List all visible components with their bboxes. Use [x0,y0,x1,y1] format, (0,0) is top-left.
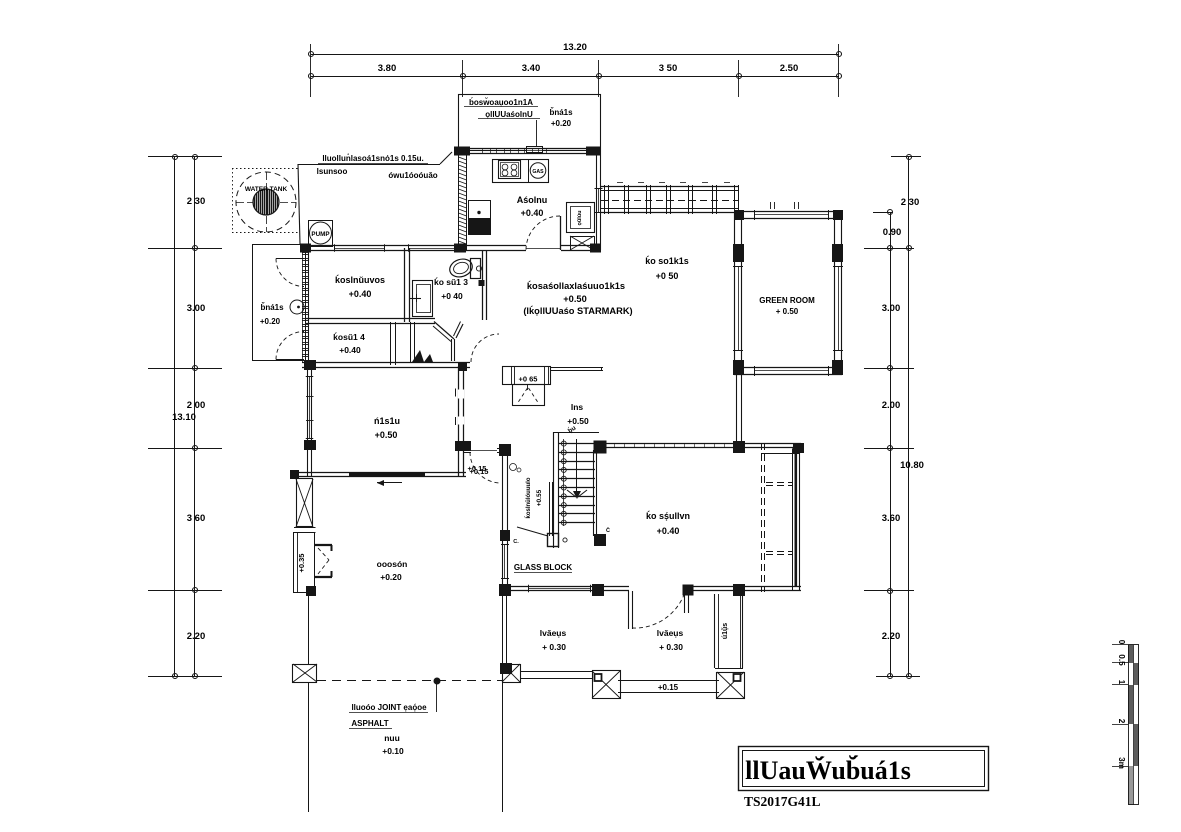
svg-text:+ 0.30: + 0.30 [542,642,566,652]
svg-text:+0 50: +0 50 [656,271,679,281]
svg-text:lluoóo JOINT ẹaọ́oe: lluoóo JOINT ẹaọ́oe [351,703,427,712]
svg-text:2 30: 2 30 [901,197,920,208]
svg-text:2 30: 2 30 [187,196,206,207]
svg-text:+0.40: +0.40 [349,289,372,299]
svg-text:13.20: 13.20 [563,42,587,53]
svg-text:llUauW̆́ub̆́uá1s: llUauW̆́ub̆́uá1s [745,756,911,785]
svg-text:+0.20: +0.20 [551,119,572,128]
svg-text:ḱoslnŭuvos: ḱoslnŭuvos [335,274,385,285]
svg-text:TS2017G41L: TS2017G41L [744,794,821,809]
svg-text:+0.50: +0.50 [375,430,398,440]
svg-text:+0.20: +0.20 [380,572,402,582]
svg-text:ASPHALT: ASPHALT [351,719,388,728]
svg-text:+0 40: +0 40 [441,291,463,301]
svg-text:b̌ná1s: b̌ná1s [549,108,573,117]
svg-text:13.10: 13.10 [172,412,196,423]
svg-text:ḱosaśollaxlaśuuo1k1s: ḱosaśollaxlaśuuo1k1s [527,280,625,291]
svg-text:+0.10: +0.10 [382,746,404,756]
svg-text:C̈: C̈ [606,527,610,534]
svg-text:ḱo sŭ1 3: ḱo sŭ1 3 [434,276,468,287]
svg-text:+0.50: +0.50 [563,294,587,304]
svg-text:b̌ná1s: b̌ná1s [260,303,284,312]
svg-text:GAS: GAS [532,169,544,175]
svg-text:nuu: nuu [384,733,400,743]
svg-text:Aśolnu: Aśolnu [517,195,548,205]
svg-text:WATER TANK: WATER TANK [245,186,288,193]
svg-text:C.: C. [513,539,519,545]
svg-text:+0.35: +0.35 [297,554,306,573]
svg-text:3.80: 3.80 [378,63,397,74]
svg-text:b́osw̆oaụoo1n1A: b́osw̆oaụoo1n1A [469,98,533,107]
svg-text:1: 1 [1117,680,1126,685]
svg-text:lluollun̊lasoá1snό1s 0.15u.: lluollun̊lasoá1snό1s 0.15u. [322,154,423,163]
svg-text:ḱosŭ1 4: ḱosŭ1 4 [333,331,365,342]
svg-text:ówu1óoóuǎo: ówu1óoóuǎo [388,171,437,180]
svg-text:+0.40: +0.40 [657,526,680,536]
svg-text:lns: lns [571,402,584,412]
svg-text:ú1ụ̆s: ú1ụ̆s [721,623,729,639]
svg-text:lsunsoo: lsunsoo [317,167,348,176]
svg-text:2.00: 2.00 [882,400,901,411]
svg-text:+0.55: +0.55 [536,489,543,506]
svg-text:(lḱọllUUaśo STARMARK): (lḱọllUUaśo STARMARK) [523,305,632,316]
svg-text:ḱo so1k1s: ḱo so1k1s [645,255,689,266]
svg-text:2: 2 [1117,719,1126,724]
svg-text:ọŭlúu: ọŭlúu [577,211,583,226]
svg-text:3.60: 3.60 [882,513,901,524]
svg-text:+0.40: +0.40 [521,208,544,218]
svg-text:3.00: 3.00 [882,303,901,314]
svg-text:+ 0.50: + 0.50 [776,307,799,316]
svg-text:3m: 3m [1117,757,1126,769]
svg-text:lvăeụs: lvăeụs [657,628,684,638]
svg-text:ḱoslnŭlóuuulo: ḱoslnŭlóuuulo [525,477,532,518]
svg-text:10.80: 10.80 [900,460,924,471]
svg-text:0.90: 0.90 [883,227,902,238]
svg-text:3.00: 3.00 [187,303,206,314]
svg-text:2.20: 2.20 [882,631,901,642]
svg-text:ń1s1u: ń1s1u [374,416,400,426]
svg-text:+0.20: +0.20 [260,317,281,326]
svg-text:+0 15: +0 15 [470,467,489,476]
svg-text:0.5: 0.5 [1117,654,1126,666]
svg-text:+0.50: +0.50 [567,416,589,426]
svg-text:GREEN ROOM: GREEN ROOM [759,296,815,305]
svg-text:+0.15: +0.15 [658,683,679,692]
svg-text:+ 0.30: + 0.30 [659,642,683,652]
svg-text:0: 0 [1117,640,1126,645]
svg-text:ọllUUaśolnU: ọllUUaśolnU [485,110,533,119]
svg-text:lvăeụs: lvăeụs [540,628,567,638]
svg-text:ḱo sṣ́ullvn: ḱo sṣ́ullvn [646,510,690,521]
svg-text:3.40: 3.40 [522,63,541,74]
svg-text:2.50: 2.50 [780,63,799,74]
svg-text:3 60: 3 60 [187,513,206,524]
svg-text:2.20: 2.20 [187,631,206,642]
svg-text:3 50: 3 50 [659,63,678,74]
svg-text:ooosón: ooosón [377,559,408,569]
svg-text:PUMP: PUMP [311,231,329,238]
svg-text:GLASS BLOCK: GLASS BLOCK [514,563,572,572]
svg-text:+0.40: +0.40 [339,345,361,355]
svg-text:+0 65: +0 65 [519,375,538,384]
svg-text:2 00: 2 00 [187,400,206,411]
